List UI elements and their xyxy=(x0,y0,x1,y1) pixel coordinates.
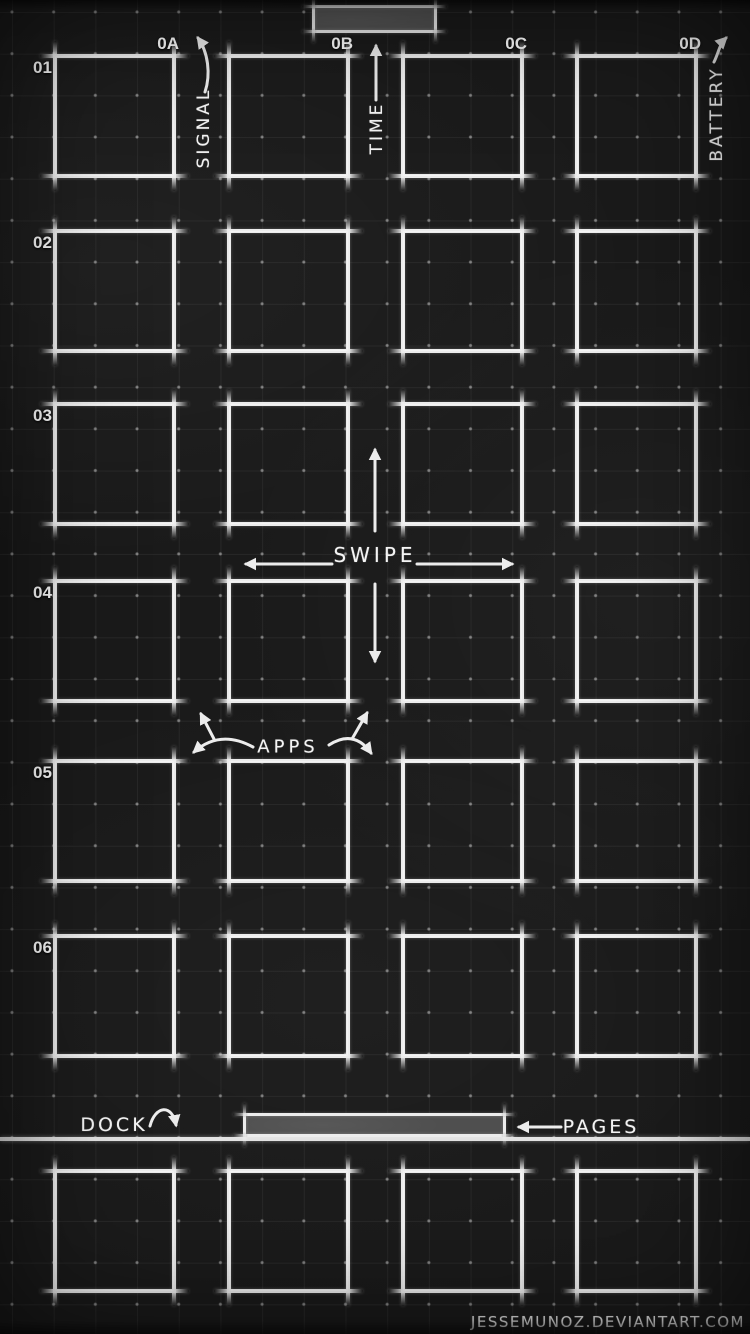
row-label: 05 xyxy=(33,763,52,783)
time-bar-fill xyxy=(315,8,434,30)
column-label: 0B xyxy=(224,34,353,54)
dock-row xyxy=(0,1169,750,1293)
pages-label: PAGES xyxy=(563,1116,640,1138)
frame-line-top xyxy=(302,5,447,8)
column-label: 0A xyxy=(50,34,179,54)
icon-circle-guide xyxy=(55,404,174,524)
icon-circle-guide xyxy=(229,1171,348,1291)
icon-slot xyxy=(575,54,698,178)
blueprint-wallpaper: 01 0A 0B 0C 0D 02 03 04 05 06 SIGNAL TIM… xyxy=(0,0,750,1334)
icon-circle-guide xyxy=(55,231,174,351)
apps-right-curve-arrow xyxy=(329,739,371,753)
apps-left-up-arrow xyxy=(201,714,214,739)
icon-circle-guide xyxy=(403,231,522,351)
column-label: 0C xyxy=(398,34,527,54)
icon-slot xyxy=(53,229,176,353)
page-indicator-bar xyxy=(243,1113,506,1137)
row-label: 03 xyxy=(33,406,52,426)
frame-line-bottom xyxy=(302,30,447,33)
icon-slot xyxy=(401,759,524,883)
icon-slot xyxy=(53,1169,176,1293)
icon-circle-guide xyxy=(577,761,696,881)
icon-circle-guide xyxy=(229,231,348,351)
icon-circle-guide xyxy=(577,404,696,524)
icon-circle-guide xyxy=(403,1171,522,1291)
frame-line-top xyxy=(233,1113,516,1116)
icon-slot xyxy=(575,934,698,1058)
signal-label: SIGNAL xyxy=(194,88,214,169)
icon-circle-guide xyxy=(55,1171,174,1291)
icon-circle-guide xyxy=(577,56,696,176)
icon-row-2: 02 xyxy=(0,229,750,353)
icon-slot xyxy=(401,229,524,353)
icon-slot xyxy=(227,759,350,883)
icon-circle-guide xyxy=(229,581,348,701)
icon-slot xyxy=(575,579,698,703)
icon-circle-guide xyxy=(577,936,696,1056)
frame-line-right xyxy=(503,1103,506,1147)
icon-slot xyxy=(227,402,350,526)
icon-circle-guide xyxy=(577,1171,696,1291)
icon-circle-guide xyxy=(403,404,522,524)
icon-slot xyxy=(227,229,350,353)
column-label: 0D xyxy=(572,34,701,54)
credit-text: JESSEMUNOZ.DEVIANTART.COM xyxy=(471,1313,745,1331)
icon-circle-guide xyxy=(403,581,522,701)
icon-circle-guide xyxy=(55,761,174,881)
dock-label: DOCK xyxy=(80,1114,147,1136)
icon-circle-guide xyxy=(229,404,348,524)
icon-circle-guide xyxy=(55,581,174,701)
icon-circle-guide xyxy=(229,761,348,881)
icon-circle-guide xyxy=(403,56,522,176)
icon-circle-guide xyxy=(229,936,348,1056)
icon-circle-guide xyxy=(577,231,696,351)
icon-slot xyxy=(575,759,698,883)
icon-row-3: 03 xyxy=(0,402,750,526)
row-label: 06 xyxy=(33,938,52,958)
icon-circle-guide xyxy=(55,936,174,1056)
icon-circle-guide xyxy=(55,56,174,176)
apps-label: APPS xyxy=(257,737,318,758)
row-label: 04 xyxy=(33,583,52,603)
icon-circle-guide xyxy=(577,581,696,701)
icon-slot xyxy=(401,54,524,178)
icon-slot xyxy=(401,1169,524,1293)
row-label: 02 xyxy=(33,233,52,253)
icon-slot xyxy=(227,579,350,703)
icon-slot xyxy=(53,759,176,883)
battery-label: BATTERY xyxy=(707,66,727,161)
apps-left-curve-arrow xyxy=(194,739,253,752)
icon-slot xyxy=(401,934,524,1058)
icon-row-4: 04 xyxy=(0,579,750,703)
icon-slot xyxy=(227,934,350,1058)
frame-line-bottom xyxy=(233,1134,516,1137)
icon-slot xyxy=(401,402,524,526)
icon-slot xyxy=(401,579,524,703)
icon-row-5: 05 xyxy=(0,759,750,883)
icon-circle-guide xyxy=(229,56,348,176)
icon-slot xyxy=(53,54,176,178)
icon-slot xyxy=(575,402,698,526)
row-label: 01 xyxy=(33,58,52,78)
time-label: TIME xyxy=(367,102,387,155)
dock-arrow xyxy=(150,1110,176,1126)
icon-slot xyxy=(227,1169,350,1293)
apps-right-up-arrow xyxy=(352,713,367,739)
frame-line-left xyxy=(243,1103,246,1147)
swipe-label: SWIPE xyxy=(333,543,416,567)
icon-circle-guide xyxy=(403,936,522,1056)
icon-slot xyxy=(575,229,698,353)
icon-slot xyxy=(227,54,350,178)
icon-row-6: 06 xyxy=(0,934,750,1058)
status-time-bar xyxy=(312,5,437,33)
icon-slot xyxy=(53,579,176,703)
icon-circle-guide xyxy=(403,761,522,881)
icon-slot xyxy=(53,402,176,526)
pages-bar-fill xyxy=(246,1116,503,1134)
icon-slot xyxy=(575,1169,698,1293)
icon-slot xyxy=(53,934,176,1058)
